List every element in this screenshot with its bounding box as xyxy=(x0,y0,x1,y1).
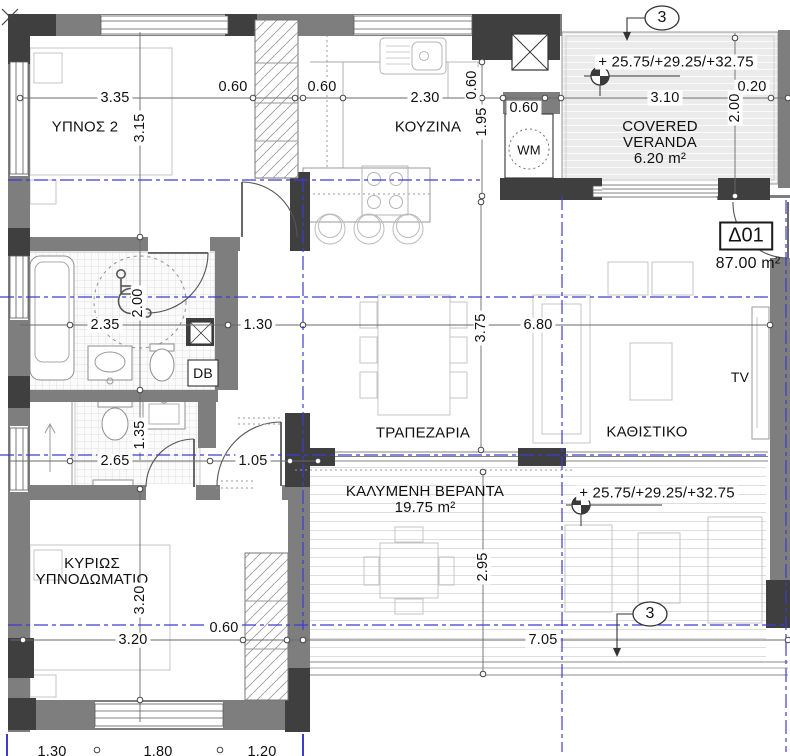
dim-kitchen-width: 2.30 xyxy=(407,91,442,106)
dim-living-width: 6.80 xyxy=(520,318,555,333)
dim-bedroom2-width: 3.35 xyxy=(97,91,132,106)
washing-machine-label: WM xyxy=(517,144,541,157)
room-label-living: ΚΑΘΙΣΤΙΚΟ xyxy=(606,425,687,440)
dim-grid-b: 1.80 xyxy=(140,745,175,756)
dim-master-door: 1.05 xyxy=(235,454,270,469)
tv-unit xyxy=(752,307,769,439)
dim-bedroom2-depth: 3.15 xyxy=(133,110,148,145)
room-label-covered-veranda-bottom: ΚΑΛΥΜΕΝΗ ΒΕΡΑΝΤΑ 19.75 m² xyxy=(310,484,540,516)
covered-veranda-area: 6.20 m² xyxy=(600,151,720,167)
dim-kitchen-depth: 1.95 xyxy=(475,104,490,139)
dim-kitchen-door: 0.60 xyxy=(506,101,541,116)
dim-master-depth: 3.20 xyxy=(133,582,148,617)
level-annotation-top: + 25.75/+29.25/+32.75 xyxy=(595,55,757,70)
room-label-dining: ΤΡΑΠΕΖΑΡΙΑ xyxy=(376,426,470,441)
doors xyxy=(146,182,788,488)
dim-kitchen-offset: 0.60 xyxy=(304,80,339,95)
section-number-top: 3 xyxy=(657,10,666,26)
room-label-covered-veranda-top: COVERED VERANDA 6.20 m² xyxy=(600,119,720,167)
bed2 xyxy=(30,48,172,175)
dim-grid-c: 1.20 xyxy=(244,745,279,756)
dim-bath1-width: 2.35 xyxy=(87,318,122,333)
dining-table xyxy=(378,295,450,415)
armchair xyxy=(608,262,648,295)
toilet xyxy=(150,349,174,381)
dim-master-closet: 0.60 xyxy=(206,621,241,636)
dim-hall-width: 1.30 xyxy=(240,318,275,333)
room-label-bedroom2: ΥΠΝΟΣ 2 xyxy=(52,120,119,135)
dim-counter-depth: 0.60 xyxy=(465,67,480,102)
dim-bath1-depth: 2.00 xyxy=(131,285,146,320)
dim-veranda-top-depth: 2.00 xyxy=(728,90,743,125)
bathtub xyxy=(30,256,74,380)
armchair xyxy=(652,262,693,295)
coffee-table xyxy=(630,343,672,400)
floor-plan: ΥΠΝΟΣ 2 ΚΟΥΖΙΝΑ COVERED VERANDA 6.20 m² … xyxy=(0,0,790,756)
covered-veranda-title: COVERED VERANDA xyxy=(600,119,720,151)
dim-bedroom2-closet: 0.60 xyxy=(215,80,250,95)
dim-veranda-bottom-depth: 2.95 xyxy=(476,549,491,584)
dim-grid-a: 1.30 xyxy=(34,745,69,756)
toilet xyxy=(102,408,128,440)
dim-master-width: 3.20 xyxy=(115,633,150,648)
room-label-kitchen: ΚΟΥΖΙΝΑ xyxy=(395,120,461,135)
unit-area: 87.00 m² xyxy=(716,256,781,272)
level-annotation-bottom: + 25.75/+29.25/+32.75 xyxy=(576,486,738,501)
veranda-gr-area: 19.75 m² xyxy=(310,500,540,516)
dim-veranda-bottom-width: 7.05 xyxy=(525,633,560,648)
kitchen-sink xyxy=(380,38,446,74)
dim-bath2-width: 2.65 xyxy=(97,454,132,469)
dim-bath2-depth: 1.35 xyxy=(133,417,148,452)
dim-living-depth: 3.75 xyxy=(474,310,489,345)
distribution-board-label: DB xyxy=(193,366,213,380)
dim-veranda-top-width: 3.10 xyxy=(647,91,682,106)
section-number-bottom: 3 xyxy=(645,606,654,622)
unit-id-tag: Δ01 xyxy=(719,222,773,251)
tv-label: TV xyxy=(731,370,749,384)
veranda-gr-title: ΚΑΛΥΜΕΝΗ ΒΕΡΑΝΤΑ xyxy=(310,484,540,500)
